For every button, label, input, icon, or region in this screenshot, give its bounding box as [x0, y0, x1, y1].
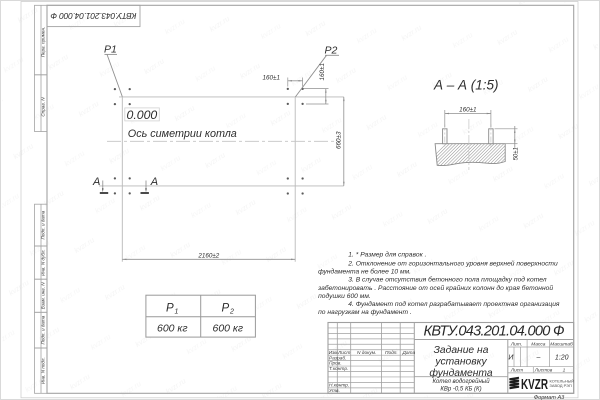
- svg-text:Подп.: Подп.: [385, 350, 398, 356]
- svg-text:Лист: Лист: [510, 368, 523, 374]
- svg-text:установку: установку: [434, 357, 487, 368]
- svg-text:Инв. N подл.: Инв. N подл.: [41, 357, 46, 384]
- svg-text:КВТУ.043.201.04.000 Ф: КВТУ.043.201.04.000 Ф: [424, 324, 565, 340]
- svg-text:3. В случае отсутствия бетонн: 3. В случае отсутствия бетонного пола пл…: [348, 276, 546, 284]
- svg-text:Р: Р: [222, 303, 230, 315]
- svg-text:160±1: 160±1: [319, 63, 326, 80]
- svg-text:ЗАВОД РЭП: ЗАВОД РЭП: [550, 383, 572, 388]
- svg-text:КВТУ.043.201.04.000 Ф: КВТУ.043.201.04.000 Ф: [50, 11, 136, 21]
- svg-text:Лист: Лист: [337, 350, 350, 356]
- svg-text:Листов: Листов: [534, 368, 553, 374]
- svg-text:160±1: 160±1: [459, 106, 476, 113]
- svg-text:1:20: 1:20: [555, 355, 569, 362]
- svg-text:Подп. и дата: Подп. и дата: [41, 315, 46, 344]
- svg-text:–: –: [535, 354, 540, 361]
- svg-text:Масштаб: Масштаб: [550, 341, 573, 347]
- svg-text:А: А: [150, 176, 158, 188]
- svg-text:4. Фундамент под котел разраб: 4. Фундамент под котел разрабатывает про…: [348, 300, 560, 308]
- svg-text:Инв. N дубл.: Инв. N дубл.: [41, 249, 46, 276]
- svg-text:1. * Размер для справок .: 1. * Размер для справок .: [348, 250, 426, 258]
- svg-text:2160±2: 2160±2: [197, 253, 219, 260]
- svg-text:660±3: 660±3: [336, 131, 343, 149]
- svg-text:по нагрузкам на фундамент .: по нагрузкам на фундамент .: [318, 308, 412, 316]
- svg-text:Котел водогрейный: Котел водогрейный: [432, 378, 490, 385]
- svg-text:2: 2: [229, 309, 234, 316]
- svg-text:забетонировать . Расстояние от: забетонировать . Расстояние от осей край…: [317, 284, 553, 292]
- svg-text:Дата: Дата: [402, 350, 416, 356]
- svg-text:P2: P2: [325, 45, 338, 57]
- svg-text:КВр -0,5 КБ (К): КВр -0,5 КБ (К): [440, 386, 481, 392]
- svg-text:2. Отклонение от горизонтальн: 2. Отклонение от горизонтального уровня …: [347, 260, 558, 268]
- svg-text:Утв.: Утв.: [329, 388, 340, 394]
- svg-text:Разраб.: Разраб.: [329, 355, 346, 361]
- svg-text:подушки 600 мм.: подушки 600 мм.: [318, 292, 371, 300]
- svg-text:1: 1: [563, 368, 566, 374]
- svg-text:Р: Р: [166, 303, 174, 315]
- svg-text:Т.контр.: Т.контр.: [329, 366, 348, 372]
- svg-text:N докум.: N докум.: [357, 350, 376, 356]
- svg-text:Перв. примен.: Перв. примен.: [41, 27, 46, 58]
- svg-text:Ось симетрии котла: Ось симетрии котла: [128, 128, 237, 140]
- svg-text:Пров.: Пров.: [329, 361, 342, 367]
- svg-text:Справ. N: Справ. N: [41, 97, 46, 117]
- svg-text:Лит.: Лит.: [510, 341, 522, 347]
- svg-text:1: 1: [175, 309, 179, 316]
- svg-text:Формат А3: Формат А3: [534, 395, 565, 400]
- svg-text:50±1: 50±1: [513, 147, 519, 160]
- svg-text:А – А (1:5): А – А (1:5): [433, 77, 499, 92]
- svg-text:А: А: [92, 176, 100, 188]
- svg-text:Взам. инв. N: Взам. инв. N: [41, 282, 46, 309]
- svg-text:600 кг: 600 кг: [213, 323, 244, 335]
- svg-text:160±1: 160±1: [263, 74, 280, 81]
- svg-text:Задание на: Задание на: [434, 345, 489, 356]
- svg-text:KVZR: KVZR: [521, 377, 548, 393]
- svg-text:фундамента: фундамента: [429, 367, 493, 379]
- svg-text:Подп. и дата: Подп. и дата: [41, 210, 46, 239]
- svg-text:Н.контр.: Н.контр.: [329, 383, 349, 389]
- svg-text:фундамента не более 10 мм.: фундамента не более 10 мм.: [318, 268, 411, 276]
- svg-text:0.000: 0.000: [127, 108, 158, 122]
- svg-text:P1: P1: [104, 44, 117, 56]
- svg-text:Масса: Масса: [531, 341, 546, 347]
- svg-text:600 кг: 600 кг: [157, 323, 188, 335]
